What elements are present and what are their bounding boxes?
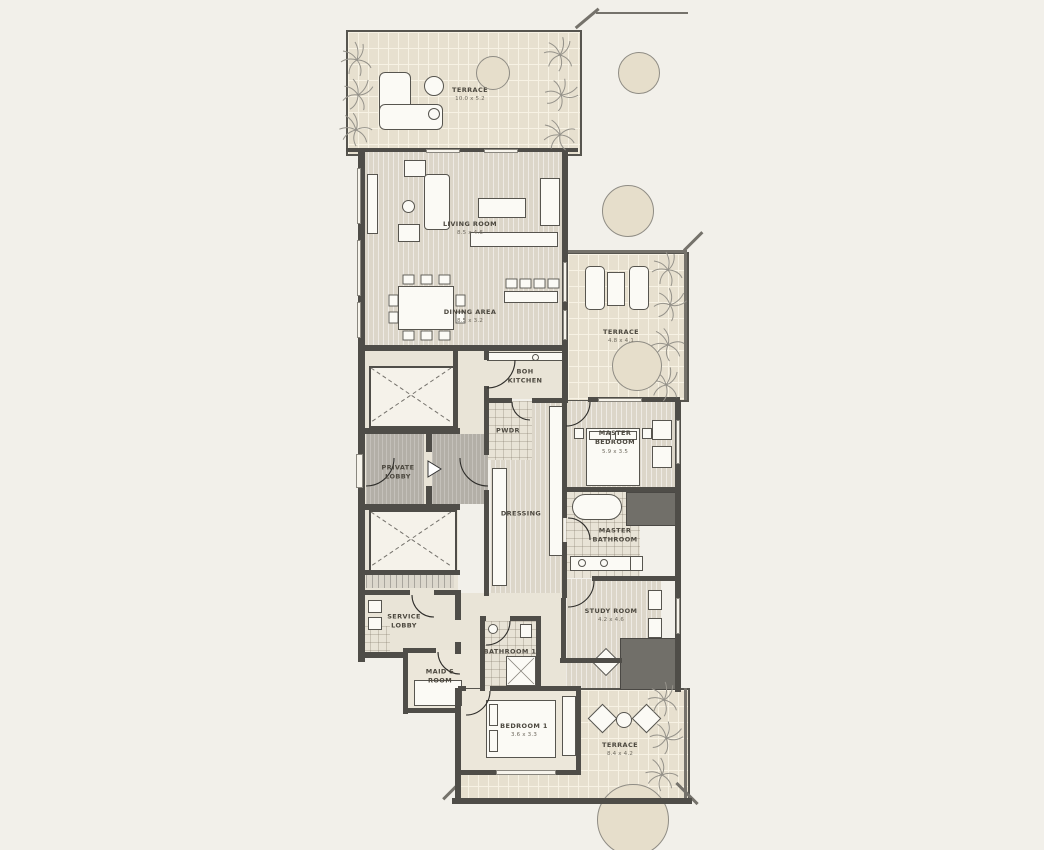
room-label-master-bathroom: MASTER BATHROOM: [585, 527, 645, 546]
wall: [560, 658, 622, 663]
armchair: [398, 224, 420, 242]
toilet: [520, 624, 532, 638]
wall: [561, 598, 566, 660]
coffee-table: [478, 198, 526, 218]
wall: [490, 686, 580, 691]
room-name: TERRACE: [603, 328, 639, 336]
armchair: [404, 160, 426, 177]
wall: [455, 688, 461, 803]
study-chair: [648, 618, 662, 638]
tree: [602, 185, 654, 237]
elevator-shaft-1: [369, 366, 457, 428]
pillow: [489, 704, 498, 726]
room-label-service-lobby: SERVICE LOBBY: [381, 613, 427, 632]
wall: [358, 148, 365, 662]
room-dim: 8.5 x 4.6: [443, 230, 497, 238]
terrace-table: [616, 712, 632, 728]
study-chair: [648, 590, 662, 610]
washer: [368, 617, 382, 630]
bar-counter: [504, 291, 558, 303]
room-label-private-lobby: PRIVATE LOBBY: [374, 464, 422, 483]
wall: [455, 590, 461, 620]
window: [598, 398, 642, 402]
window: [563, 262, 567, 302]
room-dim: 10.0 x 5.2: [452, 96, 488, 104]
wall: [426, 486, 432, 504]
wall: [403, 652, 408, 714]
room-dim: 3.6 x 3.3: [500, 732, 548, 740]
wall: [484, 400, 489, 455]
room-name: MASTER BATHROOM: [592, 527, 637, 544]
ottoman: [652, 446, 672, 468]
room-name: LIVING ROOM: [443, 220, 497, 228]
room-dim: 4.8 x 4.1: [603, 338, 639, 346]
study-closet-block: [620, 638, 677, 690]
room-name: SERVICE LOBBY: [387, 613, 421, 630]
wall: [576, 686, 581, 775]
sideboard: [540, 178, 560, 226]
armchair: [652, 420, 672, 440]
wall: [592, 576, 676, 581]
room-label-pwdr: PWDR: [496, 426, 520, 435]
toilet: [630, 556, 643, 571]
tree: [612, 341, 662, 391]
window: [357, 168, 361, 224]
parapet: [566, 250, 687, 253]
roof-edge-line: [596, 12, 688, 14]
room-name: BOH KITCHEN: [508, 368, 543, 385]
room-label-bedroom-1: BEDROOM 1 3.6 x 3.3: [500, 722, 548, 740]
room-name: TERRACE: [452, 86, 488, 94]
wall: [484, 490, 489, 596]
window: [676, 598, 680, 634]
sliding-door: [426, 149, 460, 153]
wall: [346, 148, 578, 152]
room-label-study: STUDY ROOM 4.2 x 4.6: [585, 607, 638, 625]
parapet: [684, 688, 687, 800]
wall: [484, 351, 489, 360]
room-dim: 5.9 x 3.5: [587, 449, 643, 457]
kitchen-sink: [532, 354, 539, 361]
room-name: TERRACE: [602, 741, 638, 749]
window: [676, 420, 680, 464]
room-name: MAID'S ROOM: [426, 668, 454, 685]
side-table: [402, 200, 415, 213]
window: [496, 770, 556, 775]
wall: [358, 652, 408, 658]
wall: [364, 590, 410, 595]
bathtub: [572, 494, 622, 520]
sink: [488, 624, 498, 634]
wall: [426, 434, 432, 452]
shower: [506, 656, 536, 686]
tv-console: [367, 174, 378, 234]
sink: [578, 559, 586, 567]
room-label-maids-room: MAID'S ROOM: [421, 668, 459, 687]
floor-vestibule: [432, 434, 488, 504]
wall: [358, 345, 566, 351]
wall: [403, 708, 461, 713]
room-name: STUDY ROOM: [585, 607, 638, 615]
window: [563, 310, 567, 340]
room-label-terrace-right: TERRACE 4.8 x 4.1: [603, 328, 639, 346]
room-dim: 4.2 x 4.6: [585, 617, 638, 625]
room-name: PRIVATE LOBBY: [382, 464, 415, 481]
room-label-dining: DINING AREA 8.5 x 3.2: [444, 308, 497, 326]
floor-plan-canvas: TERRACE 10.0 x 5.2 LIVING ROOM 8.5 x 4.6…: [0, 0, 1044, 850]
entry-door-opening: [356, 454, 363, 488]
wall: [364, 504, 460, 510]
washer: [368, 600, 382, 613]
wall: [562, 542, 567, 598]
nightstand: [642, 428, 652, 439]
nightstand: [574, 428, 584, 439]
wardrobe: [492, 468, 507, 586]
corner-bevel: [575, 8, 600, 29]
room-label-boh-kitchen: BOH KITCHEN: [504, 368, 546, 387]
wall: [452, 798, 692, 804]
lounge-chair: [585, 266, 605, 310]
room-name: BEDROOM 1: [500, 722, 548, 730]
wall: [532, 398, 566, 403]
wall: [453, 351, 458, 433]
wall: [566, 487, 676, 492]
room-label-master-bedroom: MASTER BEDROOM 5.9 x 3.5: [587, 429, 643, 457]
sliding-door: [484, 149, 518, 153]
room-name: MASTER BEDROOM: [595, 429, 635, 446]
elevator-shaft-2: [369, 510, 457, 572]
window: [357, 240, 361, 296]
wall: [556, 770, 580, 775]
wall: [455, 642, 461, 654]
room-label-dressing: DRESSING: [501, 509, 541, 518]
wall: [364, 428, 460, 434]
lounge-table: [607, 272, 625, 306]
room-dim: 8.4 x 4.2: [602, 751, 638, 759]
wall: [458, 770, 496, 775]
room-name: PWDR: [496, 426, 520, 434]
room-label-living: LIVING ROOM 8.5 x 4.6: [443, 220, 497, 238]
room-name: BATHROOM 1: [484, 647, 537, 655]
room-name: DRESSING: [501, 509, 541, 517]
room-label-terrace-bottom: TERRACE 8.4 x 4.2: [602, 741, 638, 759]
corner-bevel: [683, 231, 703, 251]
kitchen-counter: [487, 352, 563, 361]
wall: [458, 686, 466, 691]
room-label-bathroom-1: BATHROOM 1: [483, 647, 537, 656]
lounge-chair: [629, 266, 649, 310]
terrace-table: [424, 76, 444, 96]
room-name: DINING AREA: [444, 308, 497, 316]
wall: [562, 400, 567, 518]
master-closet-block: [626, 492, 676, 526]
room-dim: 8.5 x 3.2: [444, 318, 497, 326]
parapet: [684, 250, 687, 400]
room-label-terrace-top: TERRACE 10.0 x 5.2: [452, 86, 488, 104]
tree: [618, 52, 660, 94]
sink: [600, 559, 608, 567]
wall: [364, 570, 460, 575]
side-table: [428, 108, 440, 120]
wardrobe: [549, 406, 563, 556]
wardrobe: [562, 696, 576, 756]
window: [357, 302, 361, 338]
tree: [597, 784, 669, 850]
pillow: [489, 730, 498, 752]
